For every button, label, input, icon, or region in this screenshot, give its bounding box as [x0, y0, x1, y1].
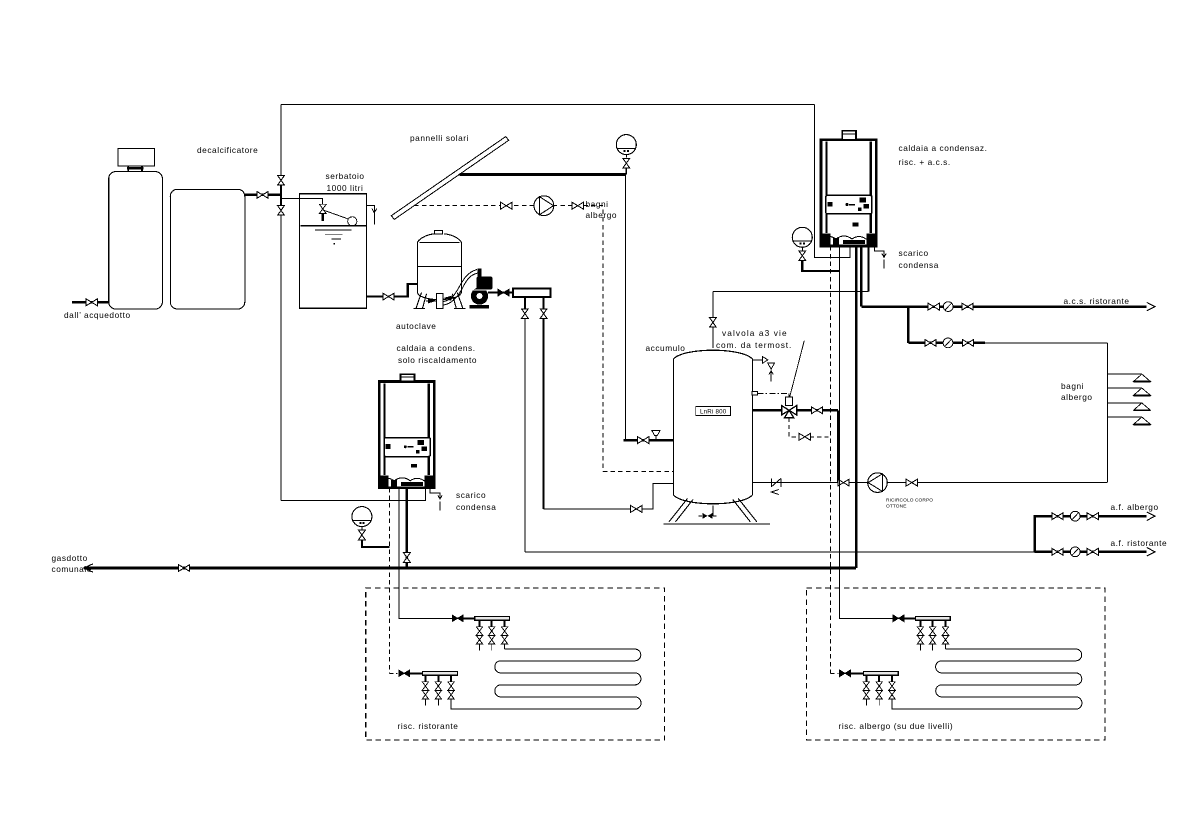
- svg-text:albergo: albergo: [1061, 392, 1093, 402]
- svg-text:LnRi 800: LnRi 800: [700, 409, 727, 416]
- svg-text:a.c.s. ristorante: a.c.s. ristorante: [1064, 296, 1130, 306]
- svg-text:risc. albergo (su due live: risc. albergo (su due livelli): [839, 721, 954, 731]
- svg-text:1000 litri: 1000 litri: [327, 183, 364, 193]
- svg-text:risc. ristorante: risc. ristorante: [398, 721, 459, 731]
- svg-text:accumulo: accumulo: [646, 343, 686, 353]
- svg-text:risc. + a.c.s.: risc. + a.c.s.: [899, 157, 951, 167]
- svg-text:autoclave: autoclave: [396, 321, 436, 331]
- svg-text:solo riscaldamento: solo riscaldamento: [398, 355, 477, 365]
- svg-text:comunale: comunale: [52, 564, 92, 574]
- svg-text:a.f. ristorante: a.f. ristorante: [1111, 538, 1168, 548]
- svg-text:RICIRCOLO CORPO: RICIRCOLO CORPO: [886, 498, 933, 504]
- svg-text:gasdotto: gasdotto: [52, 553, 88, 563]
- svg-text:condensa: condensa: [456, 502, 496, 512]
- svg-text:pannelli solari: pannelli solari: [410, 133, 469, 143]
- svg-text:scarico: scarico: [899, 248, 929, 258]
- svg-text:serbatoio: serbatoio: [326, 171, 365, 181]
- svg-text:OTTONE: OTTONE: [886, 504, 907, 510]
- svg-text:caldaia a condensaz.: caldaia a condensaz.: [899, 143, 988, 153]
- svg-text:bagni: bagni: [586, 199, 609, 209]
- svg-text:dall’ acquedotto: dall’ acquedotto: [64, 310, 131, 320]
- svg-text:condensa: condensa: [899, 260, 939, 270]
- svg-text:com. da termost.: com. da termost.: [716, 340, 792, 350]
- svg-text:bagni: bagni: [1061, 381, 1084, 391]
- svg-text:scarico: scarico: [456, 490, 486, 500]
- svg-text:decalcificatore: decalcificatore: [197, 145, 258, 155]
- svg-text:albergo: albergo: [586, 210, 618, 220]
- svg-text:valvola a3 vie: valvola a3 vie: [722, 328, 788, 338]
- svg-text:a.f. albergo: a.f. albergo: [1111, 502, 1159, 512]
- svg-text:caldaia a condens.: caldaia a condens.: [397, 343, 476, 353]
